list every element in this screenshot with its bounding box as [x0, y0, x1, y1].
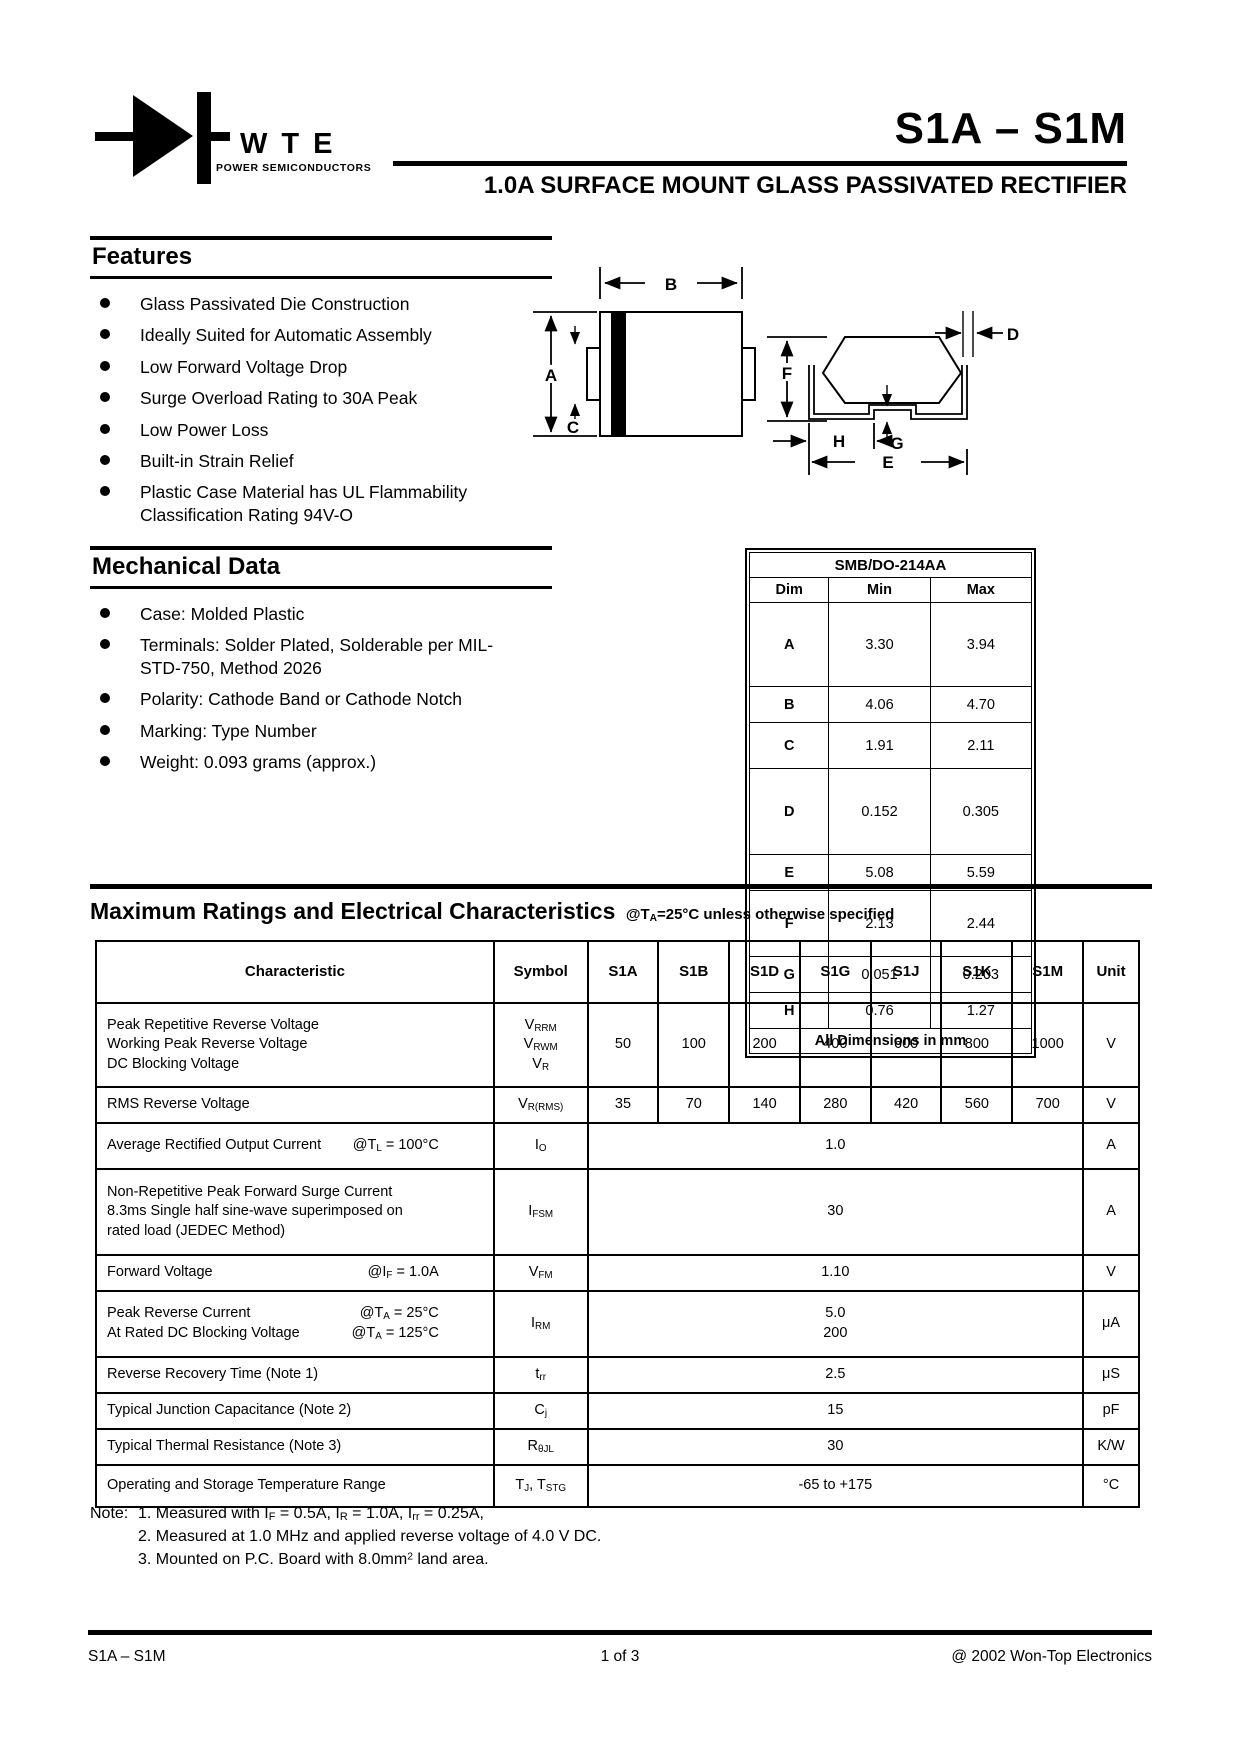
dim-label-a: A: [545, 366, 557, 385]
value-cell: 420: [871, 1087, 942, 1123]
table-row: B4.064.70: [750, 687, 1032, 723]
list-item: Plastic Case Material has UL Flammabilit…: [90, 481, 552, 526]
unit-cell: A: [1083, 1169, 1139, 1255]
dim-cell: B: [750, 687, 829, 723]
table-row: SMB/DO-214AA: [750, 553, 1032, 578]
ratings-col-header: S1J: [871, 941, 942, 1003]
list-item: Weight: 0.093 grams (approx.): [90, 751, 552, 773]
dim-label-g: G: [890, 434, 903, 453]
unit-cell: pF: [1083, 1393, 1139, 1429]
value-cell: 200: [729, 1003, 800, 1087]
bullet-icon: [100, 392, 110, 402]
notes-block: Note: 1. Measured with IF = 0.5A, IR = 1…: [90, 1505, 601, 1574]
table-row: Operating and Storage Temperature RangeT…: [96, 1465, 1139, 1507]
dim-cell: D: [750, 769, 829, 855]
dim-cell: 2.11: [930, 723, 1031, 769]
bullet-icon: [100, 608, 110, 618]
symbol-cell: RθJL: [494, 1429, 588, 1465]
features-section: Features Glass Passivated Die Constructi…: [90, 236, 552, 535]
bullet-icon: [100, 329, 110, 339]
brand-tagline: POWER SEMICONDUCTORS: [216, 162, 371, 174]
characteristic-cell: Operating and Storage Temperature Range: [96, 1465, 494, 1507]
table-row: Peak Repetitive Reverse VoltageWorking P…: [96, 1003, 1139, 1087]
value-cell: 15: [588, 1393, 1083, 1429]
value-cell: 30: [588, 1429, 1083, 1465]
table-row: RMS Reverse VoltageVR(RMS)35701402804205…: [96, 1087, 1139, 1123]
unit-cell: μA: [1083, 1291, 1139, 1357]
characteristic-cell: Typical Junction Capacitance (Note 2): [96, 1393, 494, 1429]
characteristic-cell: Average Rectified Output Current@TL = 10…: [96, 1123, 494, 1169]
list-item: Built-in Strain Relief: [90, 450, 552, 472]
dim-label-d: D: [1007, 325, 1019, 344]
divider: [393, 161, 1127, 166]
value-cell: 2.5: [588, 1357, 1083, 1393]
characteristic-cell: Reverse Recovery Time (Note 1): [96, 1357, 494, 1393]
bullet-icon: [100, 639, 110, 649]
notes-label: Note:: [90, 1505, 138, 1574]
dim-cell: 4.70: [930, 687, 1031, 723]
bullet-icon: [100, 361, 110, 371]
list-item: Glass Passivated Die Construction: [90, 293, 552, 315]
table-row: Non-Repetitive Peak Forward Surge Curren…: [96, 1169, 1139, 1255]
ratings-col-header: S1M: [1012, 941, 1083, 1003]
package-diagram: B A C F D G H: [515, 253, 1040, 488]
unit-cell: A: [1083, 1123, 1139, 1169]
value-cell: 1000: [1012, 1003, 1083, 1087]
bullet-icon: [100, 486, 110, 496]
list-item: Low Forward Voltage Drop: [90, 356, 552, 378]
dim-cell: 0.305: [930, 769, 1031, 855]
dim-cell: C: [750, 723, 829, 769]
value-cell: 400: [800, 1003, 871, 1087]
ratings-col-header: S1K: [941, 941, 1012, 1003]
bullet-icon: [100, 756, 110, 766]
list-item: Polarity: Cathode Band or Cathode Notch: [90, 688, 552, 710]
dim-label-f: F: [782, 364, 792, 383]
table-row: Reverse Recovery Time (Note 1)trr2.5μS: [96, 1357, 1139, 1393]
value-cell: 30: [588, 1169, 1083, 1255]
value-cell: 70: [658, 1087, 729, 1123]
ratings-col-header: Characteristic: [96, 941, 494, 1003]
unit-cell: μS: [1083, 1357, 1139, 1393]
note-line: 1. Measured with IF = 0.5A, IR = 1.0A, I…: [138, 1505, 601, 1523]
characteristic-cell: Peak Reverse Current@TA = 25°CAt Rated D…: [96, 1291, 494, 1357]
table-row: A3.303.94: [750, 603, 1032, 687]
brand-name: WTE: [240, 128, 346, 161]
dim-cell: 3.30: [829, 603, 930, 687]
characteristic-cell: Typical Thermal Resistance (Note 3): [96, 1429, 494, 1465]
diode-logo-icon: [95, 92, 235, 184]
package-top-view: B A C: [533, 267, 755, 437]
ratings-col-header: S1B: [658, 941, 729, 1003]
value-cell: 560: [941, 1087, 1012, 1123]
footer-part-range: S1A – S1M: [88, 1648, 443, 1666]
ratings-col-header: S1A: [588, 941, 659, 1003]
characteristic-cell: Forward Voltage@IF = 1.0A: [96, 1255, 494, 1291]
value-cell: 600: [871, 1003, 942, 1087]
table-row: D0.1520.305: [750, 769, 1032, 855]
bullet-icon: [100, 298, 110, 308]
unit-cell: °C: [1083, 1465, 1139, 1507]
page-subtitle: 1.0A SURFACE MOUNT GLASS PASSIVATED RECT…: [484, 172, 1127, 200]
dim-cell: A: [750, 603, 829, 687]
dim-label-e: E: [882, 453, 893, 472]
dimension-table-title: SMB/DO-214AA: [750, 553, 1032, 578]
unit-cell: K/W: [1083, 1429, 1139, 1465]
symbol-cell: Cj: [494, 1393, 588, 1429]
ratings-col-header: S1G: [800, 941, 871, 1003]
unit-cell: V: [1083, 1255, 1139, 1291]
bullet-icon: [100, 455, 110, 465]
ratings-col-header: Unit: [1083, 941, 1139, 1003]
value-cell: 280: [800, 1087, 871, 1123]
symbol-cell: IO: [494, 1123, 588, 1169]
table-row: Average Rectified Output Current@TL = 10…: [96, 1123, 1139, 1169]
value-cell: 5.0200: [588, 1291, 1083, 1357]
ratings-title-note: @TA=25°C unless otherwise specified: [626, 906, 895, 923]
note-line: 3. Mounted on P.C. Board with 8.0mm2 lan…: [138, 1551, 601, 1569]
page-footer: S1A – S1M 1 of 3 @ 2002 Won-Top Electron…: [88, 1648, 1152, 1666]
note-line: 2. Measured at 1.0 MHz and applied rever…: [138, 1528, 601, 1546]
value-cell: 140: [729, 1087, 800, 1123]
characteristic-cell: Non-Repetitive Peak Forward Surge Curren…: [96, 1169, 494, 1255]
symbol-cell: VFM: [494, 1255, 588, 1291]
dim-col-header: Dim: [750, 578, 829, 603]
unit-cell: V: [1083, 1087, 1139, 1123]
divider: [88, 1630, 1152, 1635]
list-item: Low Power Loss: [90, 419, 552, 441]
symbol-cell: IFSM: [494, 1169, 588, 1255]
dim-label-c: C: [567, 418, 579, 437]
bullet-icon: [100, 693, 110, 703]
table-row: Typical Junction Capacitance (Note 2)Cj1…: [96, 1393, 1139, 1429]
list-item: Case: Molded Plastic: [90, 603, 552, 625]
dim-cell: 1.91: [829, 723, 930, 769]
value-cell: 800: [941, 1003, 1012, 1087]
symbol-cell: VR(RMS): [494, 1087, 588, 1123]
bullet-icon: [100, 424, 110, 434]
value-cell: 1.0: [588, 1123, 1083, 1169]
footer-copyright: @ 2002 Won-Top Electronics: [797, 1648, 1152, 1666]
bullet-icon: [100, 725, 110, 735]
dim-cell: 0.152: [829, 769, 930, 855]
symbol-cell: VRRMVRWMVR: [494, 1003, 588, 1087]
value-cell: 35: [588, 1087, 659, 1123]
unit-cell: V: [1083, 1003, 1139, 1087]
list-item: Terminals: Solder Plated, Solderable per…: [90, 634, 552, 679]
value-cell: 1.10: [588, 1255, 1083, 1291]
dim-label-b: B: [665, 275, 677, 294]
symbol-cell: TJ, TSTG: [494, 1465, 588, 1507]
mechanical-data-section: Mechanical Data Case: Molded Plastic Ter…: [90, 546, 552, 782]
characteristic-cell: RMS Reverse Voltage: [96, 1087, 494, 1123]
table-header-row: CharacteristicSymbolS1AS1BS1DS1GS1JS1KS1…: [96, 941, 1139, 1003]
ratings-col-header: Symbol: [494, 941, 588, 1003]
value-cell: -65 to +175: [588, 1465, 1083, 1507]
list-item: Surge Overload Rating to 30A Peak: [90, 387, 552, 409]
table-row: Peak Reverse Current@TA = 25°CAt Rated D…: [96, 1291, 1139, 1357]
ratings-title: Maximum Ratings and Electrical Character…: [90, 898, 615, 924]
symbol-cell: trr: [494, 1357, 588, 1393]
ratings-section-heading: Maximum Ratings and Electrical Character…: [90, 884, 1152, 925]
mechanical-data-heading: Mechanical Data: [90, 546, 552, 589]
ratings-col-header: S1D: [729, 941, 800, 1003]
footer-page-number: 1 of 3: [443, 1648, 798, 1666]
dim-cell: 4.06: [829, 687, 930, 723]
page-title-part-range: S1A – S1M: [895, 104, 1127, 154]
list-item: Marking: Type Number: [90, 720, 552, 742]
ratings-table: CharacteristicSymbolS1AS1BS1DS1GS1JS1KS1…: [95, 940, 1140, 1508]
table-header-row: DimMinMax: [750, 578, 1032, 603]
features-heading: Features: [90, 236, 552, 279]
dim-col-header: Min: [829, 578, 930, 603]
dim-label-h: H: [833, 432, 845, 451]
dim-cell: 3.94: [930, 603, 1031, 687]
package-side-view: F D G H E: [767, 311, 1019, 475]
value-cell: 700: [1012, 1087, 1083, 1123]
cathode-band: [611, 312, 626, 436]
list-item: Ideally Suited for Automatic Assembly: [90, 324, 552, 346]
characteristic-cell: Peak Repetitive Reverse VoltageWorking P…: [96, 1003, 494, 1087]
table-row: Typical Thermal Resistance (Note 3)RθJL3…: [96, 1429, 1139, 1465]
value-cell: 100: [658, 1003, 729, 1087]
table-row: Forward Voltage@IF = 1.0AVFM1.10V: [96, 1255, 1139, 1291]
symbol-cell: IRM: [494, 1291, 588, 1357]
dim-col-header: Max: [930, 578, 1031, 603]
table-row: C1.912.11: [750, 723, 1032, 769]
value-cell: 50: [588, 1003, 659, 1087]
